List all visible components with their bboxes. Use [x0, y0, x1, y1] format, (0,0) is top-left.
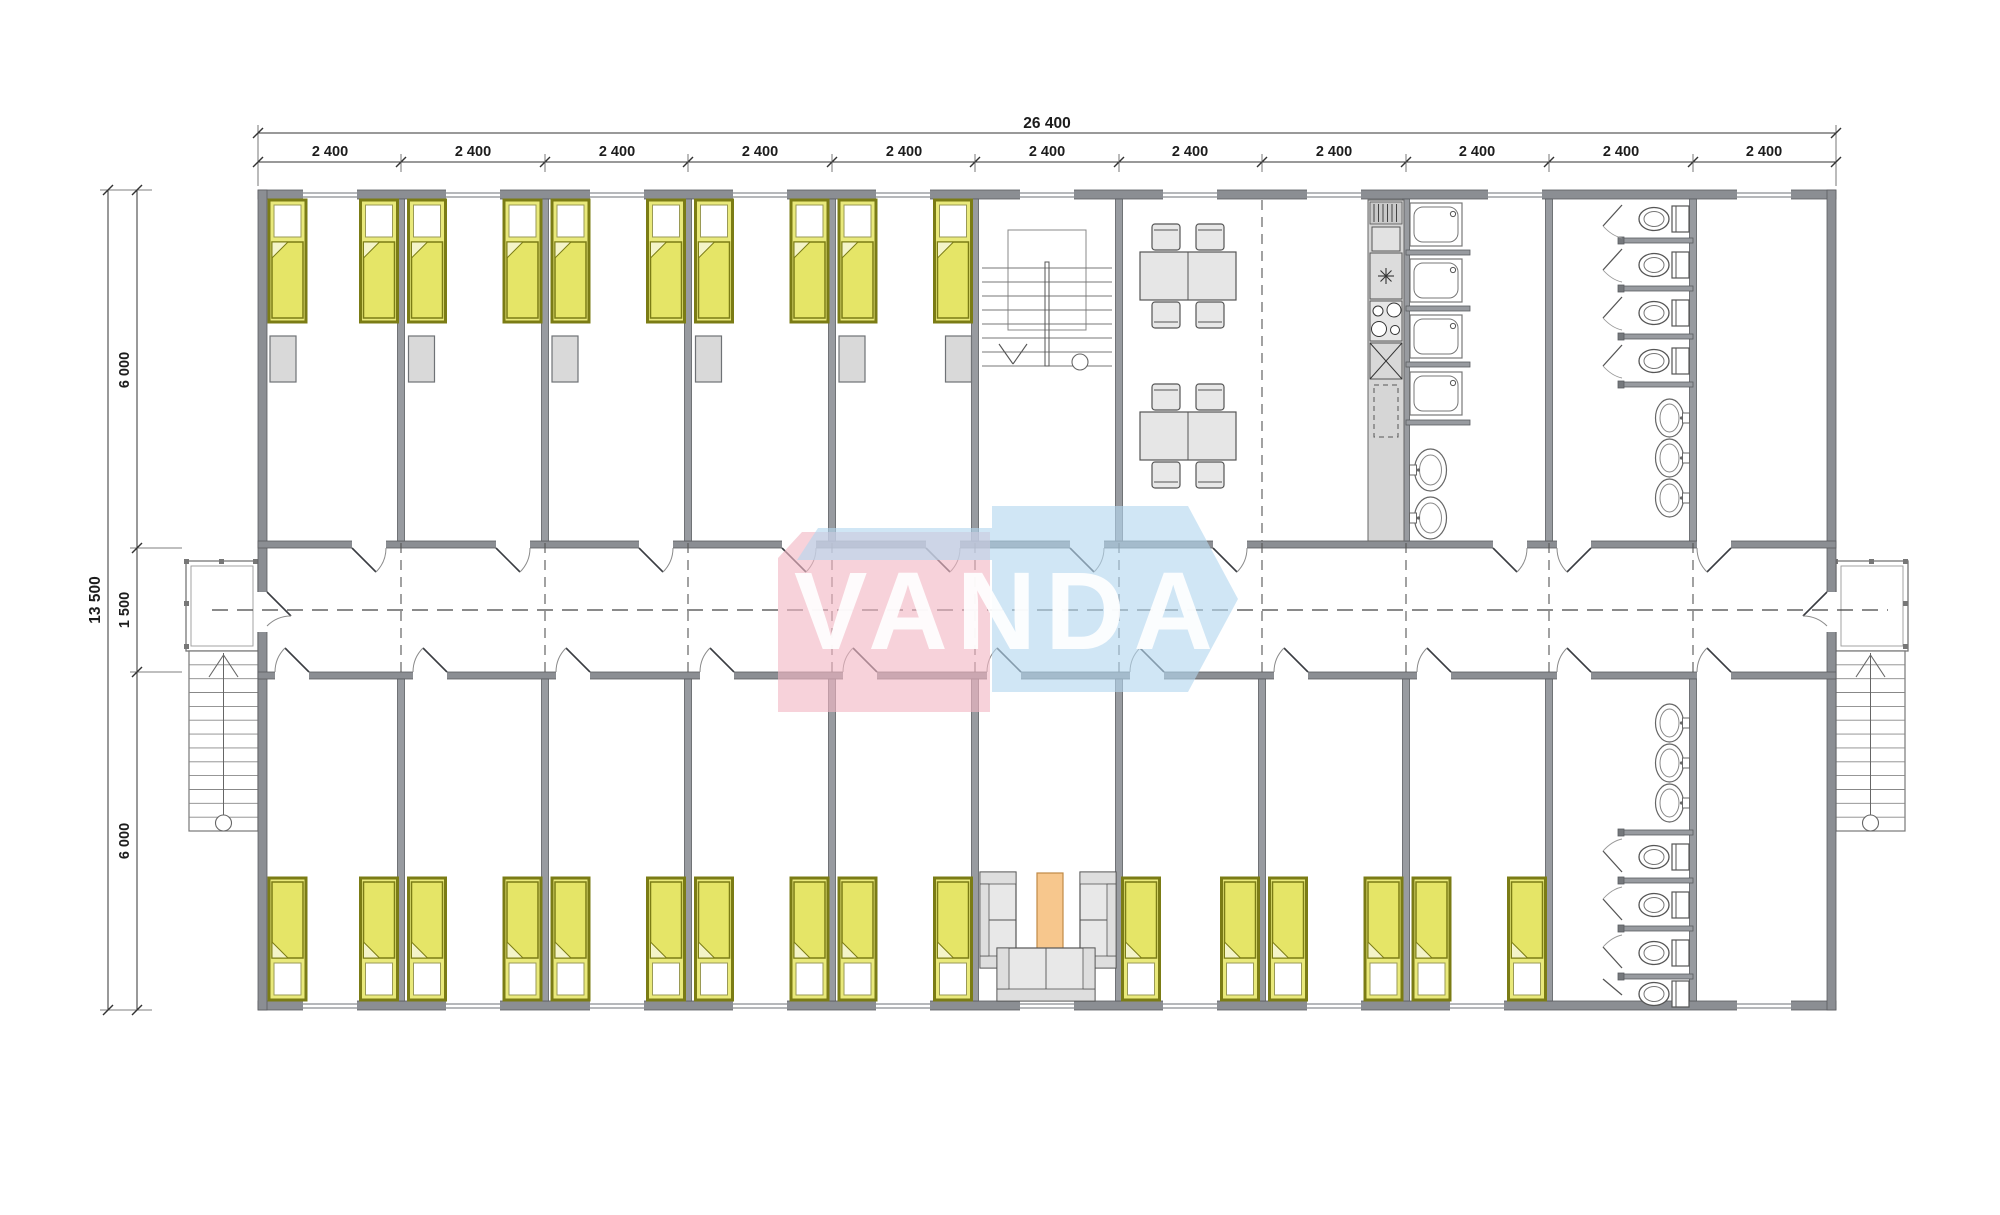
dim-bay-5: 2 400 [886, 144, 922, 160]
chair [1152, 224, 1180, 250]
toilet-icon [1639, 206, 1689, 232]
bed [552, 878, 589, 1000]
bed [791, 200, 828, 322]
dimension-chain-left: 13 500 6 000 1 500 6 000 [87, 185, 182, 1015]
bed [935, 200, 972, 322]
internal-staircase [982, 230, 1112, 370]
bed [839, 200, 876, 322]
chair [1152, 462, 1180, 488]
chair [1196, 302, 1224, 328]
toilet-icon [1639, 940, 1689, 966]
dim-bay-9: 2 400 [1459, 144, 1495, 160]
bed [839, 878, 876, 1000]
bed [361, 878, 398, 1000]
chair [1196, 384, 1224, 410]
bed [552, 200, 589, 322]
kitchen-unit [1368, 200, 1404, 541]
dim-bay-7: 2 400 [1172, 144, 1208, 160]
bedrooms-top [269, 200, 972, 382]
bed [409, 200, 446, 322]
exterior-landing-west [184, 559, 258, 651]
dim-bay-10: 2 400 [1603, 144, 1639, 160]
bed [269, 200, 306, 322]
bed [1365, 878, 1402, 1000]
logo-watermark: VANDA [778, 506, 1238, 712]
bed [648, 200, 685, 322]
dim-height-seg-2: 1 500 [117, 592, 133, 628]
logo-text: VANDA [794, 550, 1222, 673]
basin-icon [1410, 449, 1447, 491]
bed [1222, 878, 1259, 1000]
chair [1196, 224, 1224, 250]
chair [1152, 302, 1180, 328]
bed [361, 200, 398, 322]
bed [1509, 878, 1546, 1000]
basin-icon [1656, 439, 1690, 477]
bed [696, 200, 733, 322]
exterior-landing-east [1833, 559, 1908, 651]
bed [269, 878, 306, 1000]
wardrobe [946, 336, 972, 382]
wardrobe [552, 336, 578, 382]
lounge-area [980, 872, 1116, 1001]
dim-bay-8: 2 400 [1316, 144, 1352, 160]
dim-bay-2: 2 400 [455, 144, 491, 160]
toilets-bottom [1603, 704, 1690, 1007]
bed [648, 878, 685, 1000]
chair [1196, 462, 1224, 488]
shower-icon [1410, 203, 1462, 246]
bed [1270, 878, 1307, 1000]
bed [409, 878, 446, 1000]
bed [696, 878, 733, 1000]
shower-icon [1410, 259, 1462, 302]
dim-bay-4: 2 400 [742, 144, 778, 160]
bed [1413, 878, 1450, 1000]
bed [791, 878, 828, 1000]
bed [504, 200, 541, 322]
dim-bay-3: 2 400 [599, 144, 635, 160]
basin-icon [1656, 784, 1690, 822]
toilets-top [1603, 205, 1690, 517]
basin-icon [1656, 744, 1690, 782]
basin-icon [1656, 399, 1690, 437]
shower-icon [1410, 372, 1462, 415]
bedrooms-bottom [269, 878, 1546, 1000]
wardrobe [270, 336, 296, 382]
toilet-icon [1639, 348, 1689, 374]
dimension-chain-top: 26 400 2 400 2 400 2 400 2 400 2 400 2 4… [253, 115, 1841, 186]
sofa [997, 948, 1095, 1001]
toilet-icon [1639, 981, 1689, 1007]
dim-height-seg-3: 6 000 [117, 823, 133, 859]
exterior-staircase-east [1836, 651, 1905, 831]
toilet-icon [1639, 892, 1689, 918]
dim-bay-1: 2 400 [312, 144, 348, 160]
dim-total-width: 26 400 [1023, 115, 1070, 132]
bed [935, 878, 972, 1000]
floor-plan-drawing: 26 400 2 400 2 400 2 400 2 400 2 400 2 4… [0, 0, 2000, 1215]
wardrobe [696, 336, 722, 382]
exterior-staircase-west [189, 651, 258, 831]
dim-height-seg-1: 6 000 [117, 352, 133, 388]
floor-plan-page: 26 400 2 400 2 400 2 400 2 400 2 400 2 4… [0, 0, 2000, 1215]
bed [1123, 878, 1160, 1000]
shower-icon [1410, 315, 1462, 358]
appliance-box [1372, 227, 1400, 251]
toilet-icon [1639, 252, 1689, 278]
basin-icon [1410, 497, 1447, 539]
wardrobe [839, 336, 865, 382]
basin-icon [1656, 704, 1690, 742]
dim-total-height: 13 500 [87, 576, 104, 623]
dim-bay-6: 2 400 [1029, 144, 1065, 160]
toilet-icon [1639, 300, 1689, 326]
dining-area [1140, 224, 1236, 488]
vent-hatch [1370, 202, 1402, 224]
chair [1152, 384, 1180, 410]
wardrobe [409, 336, 435, 382]
dim-bay-11: 2 400 [1746, 144, 1782, 160]
bed [504, 878, 541, 1000]
basin-icon [1656, 479, 1690, 517]
toilet-icon [1639, 844, 1689, 870]
